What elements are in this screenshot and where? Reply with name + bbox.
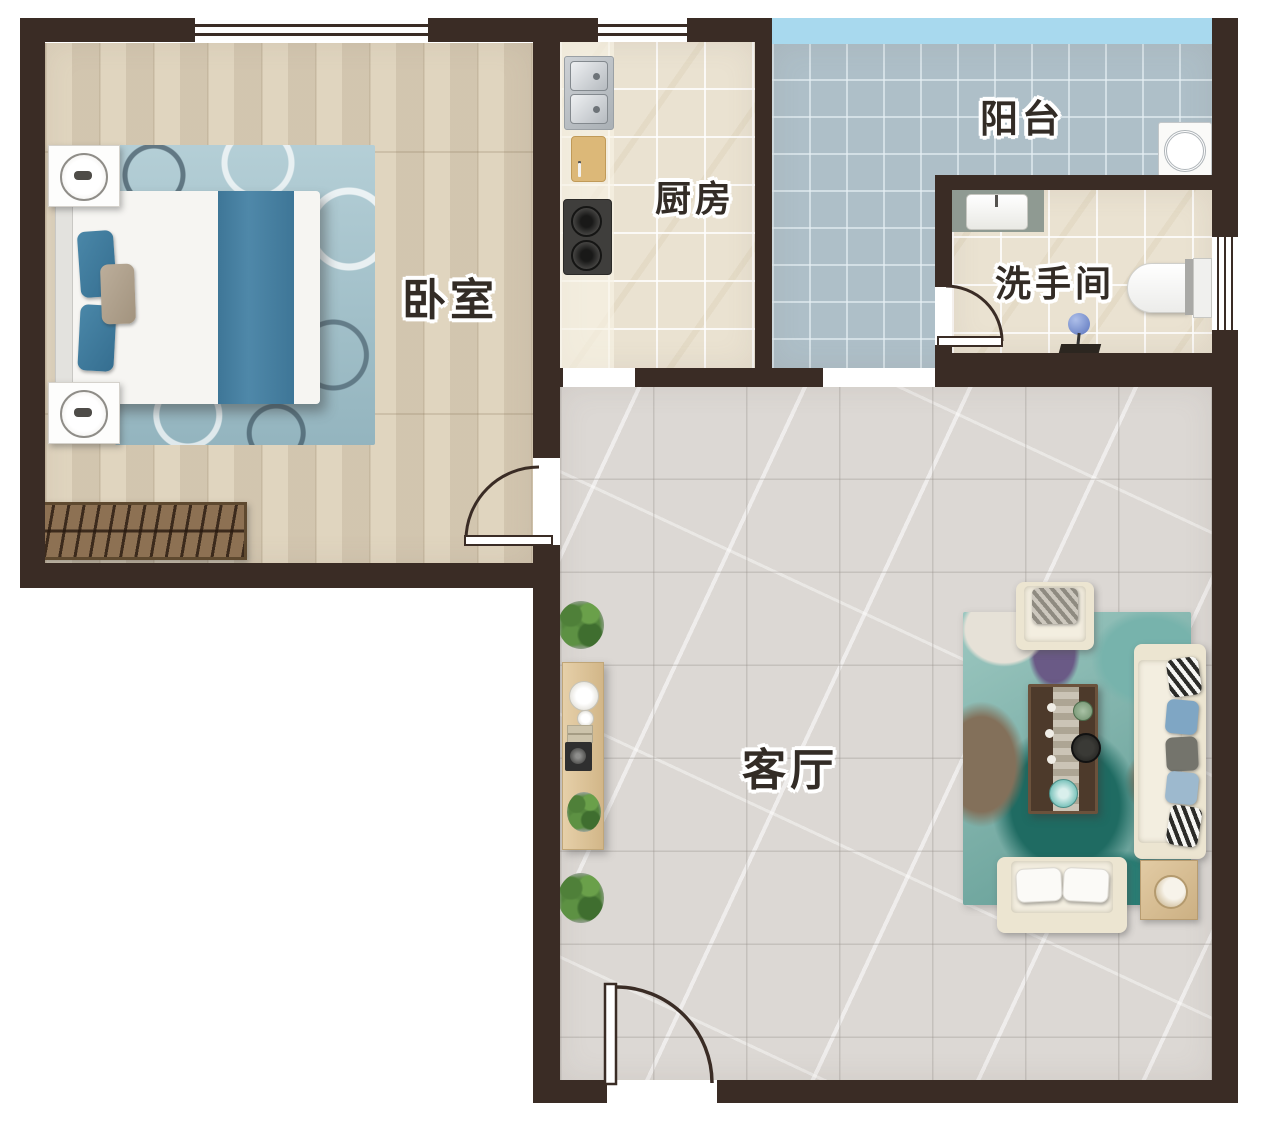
sink-basin xyxy=(570,61,608,91)
tv-stand xyxy=(562,662,604,850)
television xyxy=(565,742,592,771)
wall-bathroom-bottom xyxy=(935,353,1238,387)
teacup xyxy=(1045,729,1054,738)
toilet-tank xyxy=(1193,258,1212,318)
potted-plant-icon xyxy=(567,792,601,832)
cutting-board xyxy=(571,136,606,182)
bedroom-window xyxy=(195,18,428,42)
mop-bucket xyxy=(1068,313,1090,335)
bathroom-window xyxy=(1212,237,1238,330)
stove-burner xyxy=(571,206,602,237)
sofa-pillow-zebra xyxy=(1165,804,1203,849)
bedroom-bench xyxy=(42,502,247,560)
wall-left xyxy=(20,18,45,588)
nightstand-bottom xyxy=(48,382,120,444)
bedroom-door-opening xyxy=(533,458,560,545)
wall-center-vertical-upper xyxy=(533,42,560,458)
sofa-pillow-blue xyxy=(1165,699,1200,736)
wall-bathroom-top xyxy=(935,175,1238,190)
nightstand-top xyxy=(48,145,120,207)
kitchen-doorway-opening xyxy=(563,368,635,387)
loveseat-pillow xyxy=(1015,867,1063,903)
bed-runner-blanket xyxy=(218,191,294,404)
bathroom-sink xyxy=(966,194,1028,230)
balcony-doorway-opening xyxy=(823,368,937,387)
teapot xyxy=(1073,701,1093,721)
toilet-bowl xyxy=(1127,263,1189,313)
wall-bottom xyxy=(533,1080,1238,1103)
living-room-label: 客厅 xyxy=(742,734,838,798)
teal-bowl xyxy=(1049,779,1078,808)
stove-burner xyxy=(571,240,602,271)
potted-plant-icon xyxy=(558,601,604,649)
potted-plant-icon xyxy=(558,873,604,923)
teacup xyxy=(1047,755,1056,764)
mop-base xyxy=(1059,344,1101,353)
books xyxy=(567,725,593,743)
sofa-pillow-gray xyxy=(1165,736,1199,772)
loveseat-pillow xyxy=(1062,867,1110,903)
kitchen-window xyxy=(598,18,687,42)
armchair xyxy=(1016,582,1094,650)
tea-tray xyxy=(1071,733,1101,763)
balcony-label: 阳台 xyxy=(980,88,1064,143)
table-lamp-icon xyxy=(60,390,108,438)
armchair-cushion xyxy=(1032,588,1078,624)
wall-bathroom-left-upper xyxy=(935,175,952,287)
teacup xyxy=(1047,703,1056,712)
side-table xyxy=(1140,860,1198,920)
sink-basin xyxy=(570,94,608,124)
sofa xyxy=(1134,644,1206,859)
loveseat xyxy=(997,857,1127,933)
sofa-pillow-lightblue xyxy=(1164,770,1199,805)
bed-headboard xyxy=(55,196,73,401)
kitchen-sink xyxy=(564,56,614,130)
gas-stove xyxy=(563,199,612,275)
washing-machine xyxy=(1158,122,1212,177)
sofa-pillow-zebra xyxy=(1166,656,1203,698)
bedroom-label: 卧室 xyxy=(402,264,498,328)
wall-kitchen-balcony-divider xyxy=(755,18,772,387)
bed-pillow-lumbar xyxy=(100,263,136,324)
bathroom-label: 洗手间 xyxy=(995,255,1115,307)
wall-bedroom-bottom xyxy=(20,563,560,588)
decor-plate xyxy=(569,681,599,711)
toilet-seat-hinge xyxy=(1185,259,1193,315)
wall-center-vertical-lower xyxy=(533,545,560,1103)
balcony-glass-window xyxy=(772,18,1212,44)
kitchen-label: 厨房 xyxy=(655,170,735,222)
floor-plan: 卧室 厨房 阳台 洗手间 客厅 xyxy=(0,0,1280,1129)
table-lamp-icon xyxy=(60,153,108,201)
bathroom-vanity-counter xyxy=(952,190,1044,232)
coffee-table xyxy=(1028,684,1098,814)
